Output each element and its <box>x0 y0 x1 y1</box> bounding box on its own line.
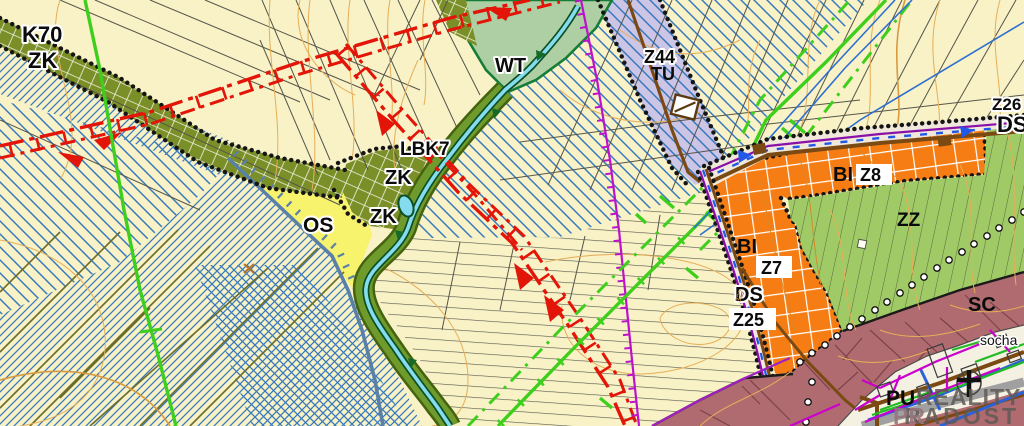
svg-text:SC: SC <box>968 294 996 316</box>
svg-text:Z25: Z25 <box>733 310 764 330</box>
svg-text:K70: K70 <box>22 22 62 47</box>
svg-text:ZK: ZK <box>370 206 397 228</box>
svg-text:OS: OS <box>303 214 333 237</box>
svg-text:DS: DS <box>997 112 1024 137</box>
svg-text:ZK: ZK <box>385 167 412 189</box>
svg-text:socha: socha <box>980 332 1018 348</box>
svg-text:BI: BI <box>833 164 853 186</box>
svg-text:Z7: Z7 <box>761 258 782 278</box>
svg-text:TU: TU <box>651 64 675 84</box>
svg-text:LBK7: LBK7 <box>400 139 450 160</box>
svg-text:BI: BI <box>737 236 757 258</box>
svg-text:Z8: Z8 <box>860 165 881 185</box>
svg-text:PR: PR <box>893 403 925 426</box>
svg-text:ZZ: ZZ <box>897 210 921 231</box>
svg-text:ZK: ZK <box>28 48 57 73</box>
svg-text:WT: WT <box>495 55 526 77</box>
